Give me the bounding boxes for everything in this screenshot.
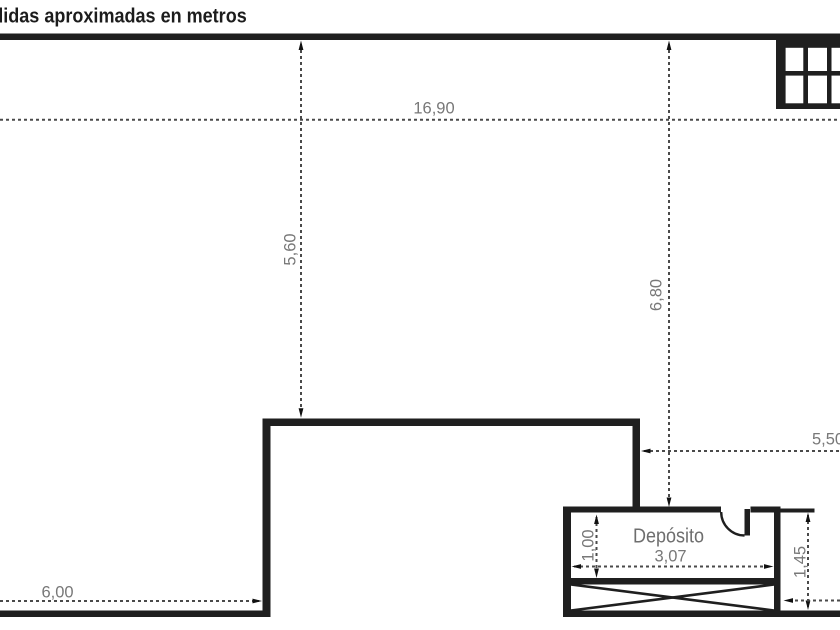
svg-text:1,45: 1,45	[792, 546, 810, 578]
svg-text:Depósito: Depósito	[633, 526, 704, 548]
svg-text:5,60: 5,60	[282, 233, 300, 265]
svg-text:1,00: 1,00	[580, 529, 598, 561]
svg-text:Medidas aproximadas en metros: Medidas aproximadas en metros	[0, 6, 247, 28]
svg-text:5,50: 5,50	[812, 431, 840, 449]
svg-text:6,00: 6,00	[41, 584, 73, 602]
svg-text:6,80: 6,80	[648, 279, 666, 311]
svg-text:3,07: 3,07	[654, 548, 686, 566]
svg-text:16,90: 16,90	[413, 100, 454, 118]
